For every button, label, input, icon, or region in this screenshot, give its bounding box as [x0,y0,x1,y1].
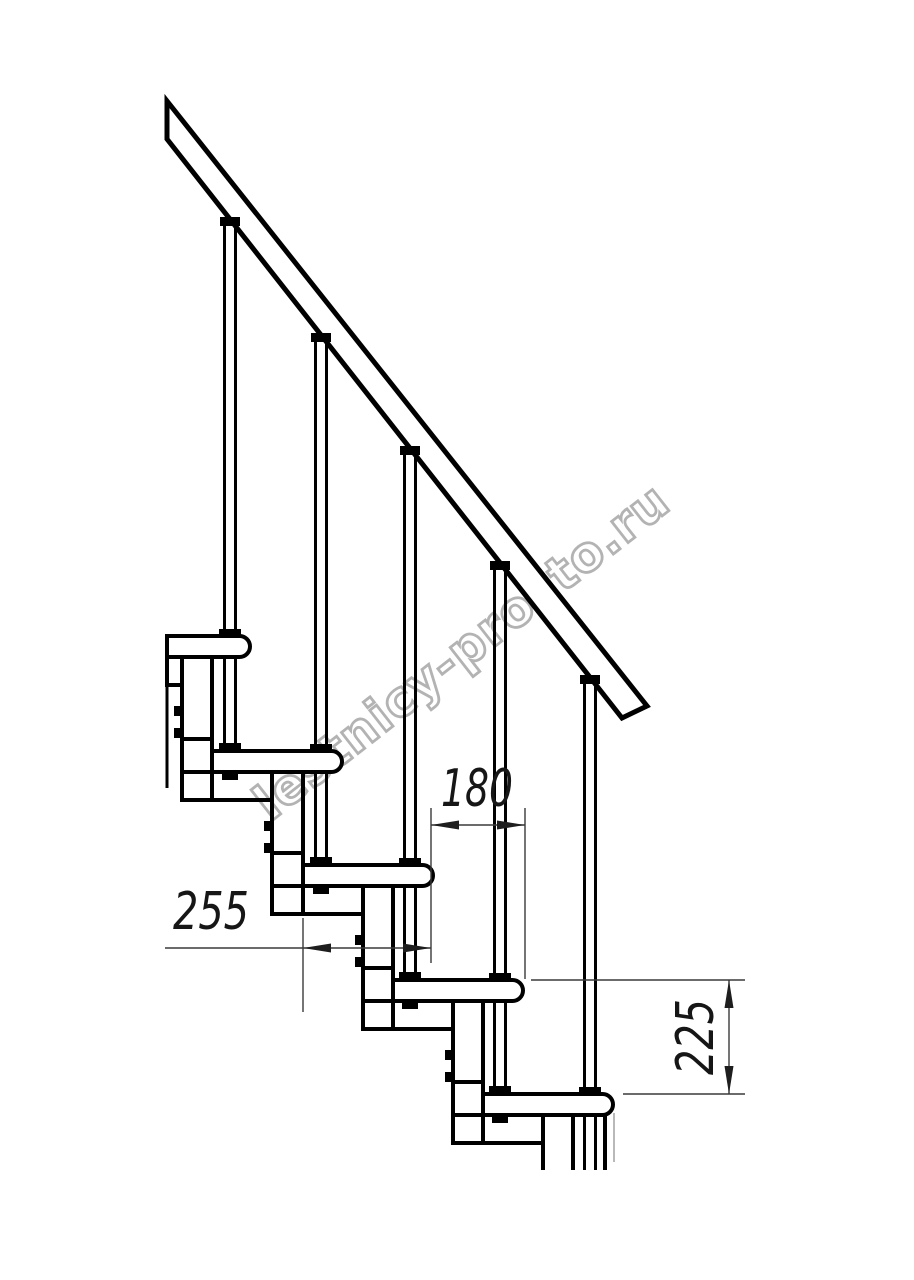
tread-5 [483,1094,613,1115]
baluster-5-rail-cap [580,675,600,684]
module-2-bolt-lower [264,843,272,853]
tread-4 [393,980,523,1001]
modular-staircase-side-view: lestnicy-prosto.ru [0,0,914,1280]
baluster-2-foot-cap [310,857,332,865]
dimension-180-label: 180 [441,759,513,819]
module-1-arm [167,657,182,685]
baluster-3-rail-cap [400,446,420,455]
baluster-2-under-nub [313,886,329,894]
dimension-255-arrow-left [303,944,331,953]
module-1-bolt-lower [174,728,182,738]
module-3-box [363,886,393,1029]
baluster-4-foot-cap [489,1086,511,1094]
tread-2 [212,751,342,772]
dimension-180-arrow-right [497,821,525,830]
baluster-3-tread-flange [399,858,421,865]
baluster-5-tread-flange [579,1087,601,1094]
baluster-2-tread-flange [310,744,332,751]
handrail-band [167,101,647,718]
module-3-bolt-lower [355,957,363,967]
module-4-bolt-upper [445,1050,453,1060]
baluster-4-rail-cap [490,561,510,570]
baluster-1 [219,217,241,780]
tread-3 [303,865,433,886]
dimension-255-label: 255 [173,882,249,942]
tread-1 [167,636,250,657]
baluster-3-foot-cap [399,972,421,980]
baluster-2-rail-cap [311,333,331,342]
module-2-bolt-upper [264,821,272,831]
module-4-bolt-lower [445,1072,453,1082]
baluster-1-under-nub [222,772,238,780]
baluster-4-under-nub [492,1115,508,1123]
staircase-drawing-page: lestnicy-prosto.ru [0,0,914,1280]
baluster-2 [310,333,332,894]
baluster-3-under-nub [402,1001,418,1009]
baluster-1-foot-cap [219,743,241,751]
dimension-225-label: 225 [666,999,726,1075]
baluster-1-rail-cap [220,217,240,226]
module-1-box [182,657,212,800]
module-4-box [453,1001,483,1143]
module-1-bolt-upper [174,706,182,716]
dimension-180-arrow-left [431,821,459,830]
handrail [167,101,647,718]
baluster-4-tread-flange [489,973,511,980]
baluster-1-tread-flange [219,629,241,636]
dimension-225: 225 [531,980,745,1162]
dimension-180: 180 [431,759,525,979]
module-3-bolt-upper [355,935,363,945]
